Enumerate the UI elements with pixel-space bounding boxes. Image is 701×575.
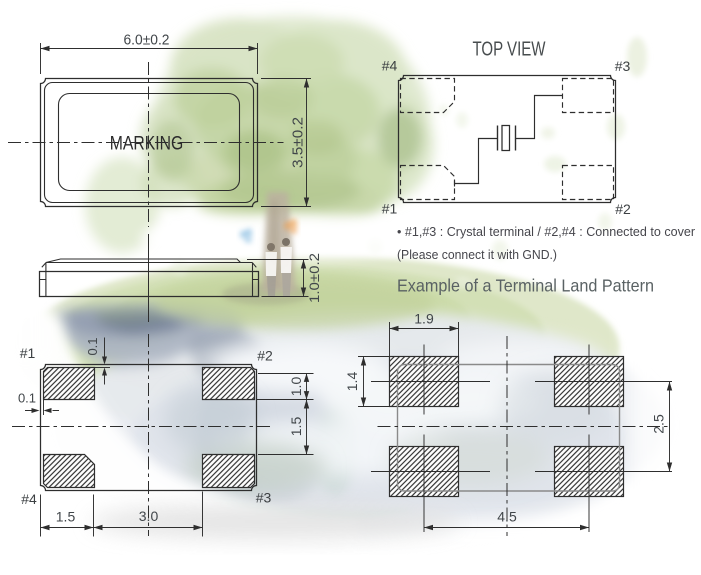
svg-text:1.0: 1.0 [288, 377, 304, 397]
svg-text:TOP VIEW: TOP VIEW [473, 38, 546, 61]
svg-text:#4: #4 [21, 491, 37, 507]
svg-text:#4: #4 [382, 58, 398, 74]
svg-text:MARKING: MARKING [110, 134, 184, 155]
svg-text:1.9: 1.9 [414, 311, 434, 327]
svg-text:4.5: 4.5 [497, 509, 517, 525]
svg-text:1.0±0.2: 1.0±0.2 [306, 253, 322, 303]
svg-text:3.0: 3.0 [139, 508, 159, 524]
svg-text:1.5: 1.5 [288, 417, 304, 437]
svg-text:#1: #1 [382, 201, 398, 217]
svg-text:#3: #3 [256, 490, 272, 506]
svg-text:#3: #3 [615, 58, 631, 74]
svg-text:#2: #2 [257, 348, 273, 364]
svg-text:3.5±0.2: 3.5±0.2 [291, 117, 307, 168]
svg-text:(Please connect it with GND.): (Please connect it with GND.) [397, 247, 557, 262]
svg-text:2.5: 2.5 [651, 414, 667, 434]
svg-text:#2: #2 [615, 201, 631, 217]
svg-text:6.0±0.2: 6.0±0.2 [124, 33, 170, 49]
svg-text:0.1: 0.1 [18, 391, 36, 406]
svg-text:1.4: 1.4 [344, 372, 360, 392]
svg-text:1.5: 1.5 [56, 509, 76, 525]
svg-text:• #1,#3 : Crystal terminal / #: • #1,#3 : Crystal terminal / #2,#4 : Con… [397, 224, 696, 239]
svg-text:Example of a Terminal Land Pat: Example of a Terminal Land Pattern [397, 276, 654, 296]
svg-text:#1: #1 [20, 345, 36, 361]
svg-text:0.1: 0.1 [85, 337, 100, 355]
